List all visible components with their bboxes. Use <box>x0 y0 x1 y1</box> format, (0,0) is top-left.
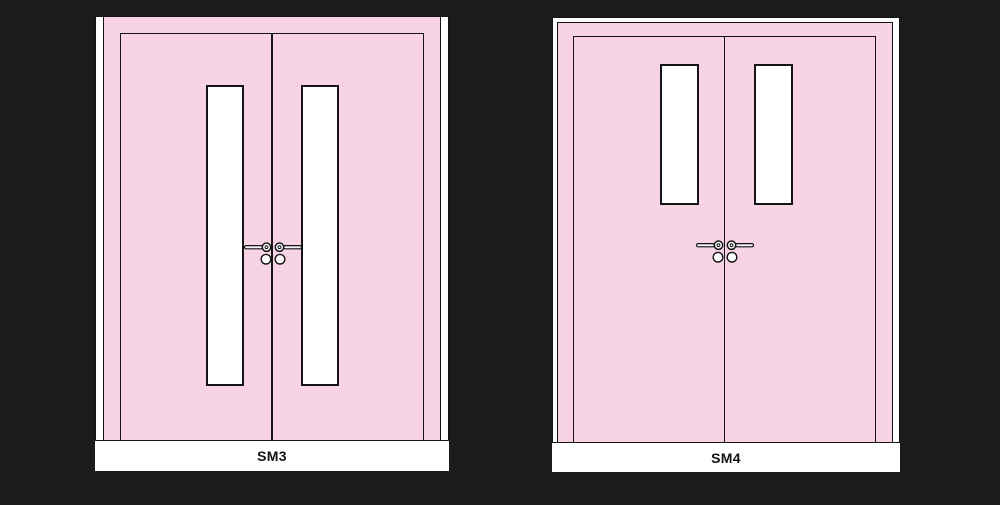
door-pair <box>573 36 876 443</box>
door-pair <box>120 33 424 441</box>
vision-panel-right <box>301 85 339 386</box>
door-knob-icon <box>275 254 285 264</box>
lever-handle-icon <box>241 235 305 265</box>
door-elevation-sm3: SM3 <box>95 16 449 471</box>
figure-label: SM3 <box>257 448 287 464</box>
door-knob-icon <box>727 252 737 262</box>
door-knob-icon <box>713 252 723 262</box>
door-elevation-sm4: SM4 <box>552 17 900 472</box>
vision-panel-left <box>206 85 244 386</box>
figure-label-band: SM4 <box>552 443 900 472</box>
figure-label-band: SM3 <box>95 441 449 471</box>
lever-handle-icon <box>693 233 757 263</box>
figure-label: SM4 <box>711 450 741 466</box>
vision-panel-left <box>660 64 699 205</box>
vision-panel-right <box>754 64 793 205</box>
door-knob-icon <box>261 254 271 264</box>
